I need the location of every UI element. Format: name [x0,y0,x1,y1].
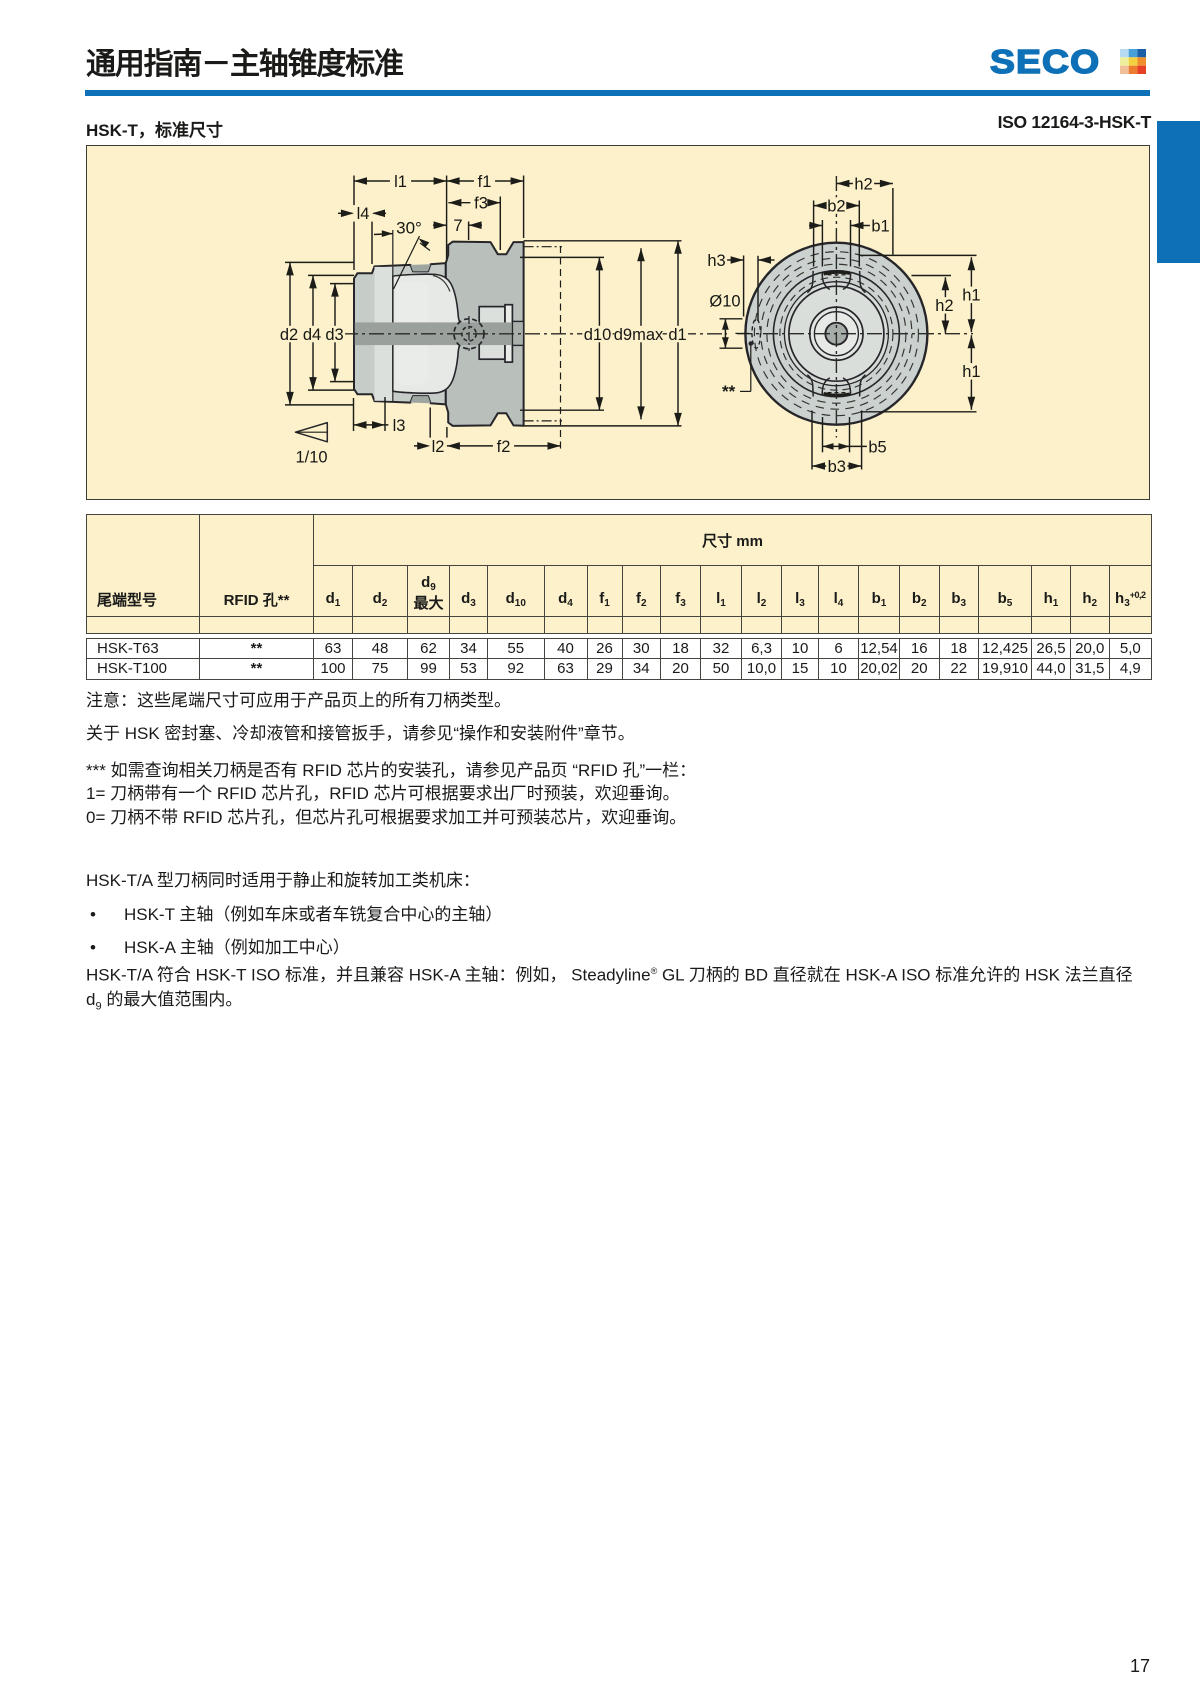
svg-text:d4: d4 [303,326,321,344]
svg-text:f1: f1 [478,173,492,191]
svg-text:1/10: 1/10 [295,448,327,466]
svg-text:b5: b5 [868,438,886,456]
svg-text:d10: d10 [584,326,612,344]
svg-text:b2: b2 [827,198,845,216]
svg-text:d9max: d9max [614,326,664,344]
svg-text:Ø10: Ø10 [709,292,740,310]
svg-text:h2: h2 [854,175,872,193]
svg-text:l2: l2 [432,438,445,456]
svg-text:d1: d1 [668,326,686,344]
svg-text:h1: h1 [962,287,980,305]
svg-text:d3: d3 [325,326,343,344]
svg-text:7: 7 [453,217,462,235]
svg-text:**: ** [722,382,736,401]
svg-text:30°: 30° [396,219,422,238]
svg-text:f3: f3 [474,195,488,213]
svg-text:l1: l1 [394,173,407,191]
svg-text:h1: h1 [962,363,980,381]
svg-text:h2: h2 [935,297,953,315]
svg-text:b1: b1 [871,217,889,235]
svg-text:b3: b3 [828,458,846,476]
svg-text:l4: l4 [357,205,370,223]
svg-text:h3: h3 [707,252,725,270]
svg-text:f2: f2 [497,438,511,456]
svg-text:l3: l3 [393,417,406,435]
svg-text:d2: d2 [280,326,298,344]
